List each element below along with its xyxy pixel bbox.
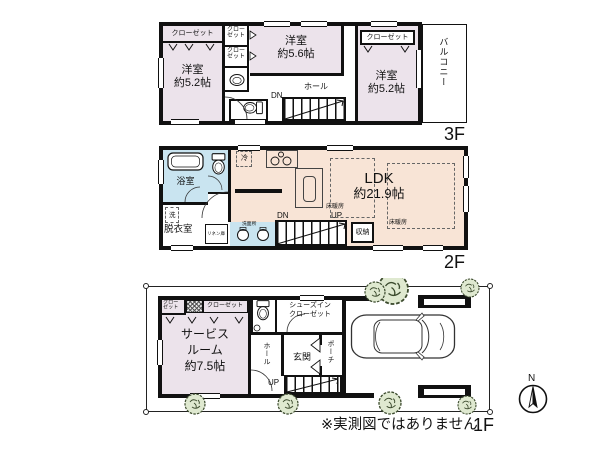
carport-wall	[346, 393, 374, 398]
f2-floor-heating-label-2: 床暖房	[389, 220, 407, 227]
ldk-name: LDK	[337, 170, 421, 187]
f2-lavatory: 洗面所	[230, 222, 275, 246]
f3-bedroom-left-label: 洋室 約5.2帖	[163, 64, 222, 89]
window	[416, 50, 422, 88]
f2-storage: 収納	[351, 222, 374, 243]
f1-closet: クローゼット	[203, 300, 248, 313]
f2-ldk-label: LDK 約21.9帖	[337, 170, 421, 202]
window	[158, 58, 164, 88]
floor-3f: バルコニー クローゼット クロー ゼット クロー ゼット 洋室 約5.6帖 洋室…	[159, 22, 479, 148]
f3-wash-nook	[225, 68, 249, 92]
wall	[251, 332, 344, 335]
shoes-closet-line2: クローゼット	[279, 311, 341, 320]
planter-inner	[424, 299, 465, 305]
f2-laundry-box: 洗	[165, 207, 179, 223]
window	[157, 340, 163, 365]
wall	[163, 202, 208, 205]
f3-closet-small-1-label: クロー ゼット	[227, 27, 245, 40]
f3-hall-label: ホール	[286, 82, 346, 91]
f3-closet-small-2-label: クロー ゼット	[227, 48, 245, 61]
window	[264, 21, 290, 27]
f1-toilet-room	[251, 298, 277, 334]
floor-1f: クロー ゼット クローゼット サービス ルーム 約7.5帖 シューズイン クロー…	[140, 278, 600, 444]
f2-fridge-label: 冷	[241, 155, 248, 163]
compass-north-label: N	[528, 373, 535, 384]
shoes-closet-line1: シューズイン	[279, 302, 341, 311]
window	[238, 145, 260, 151]
disclaimer-text: ※実測図ではありません	[321, 417, 478, 434]
floor-label-2f: 2F	[444, 252, 465, 273]
f3-toilet-room	[229, 99, 268, 121]
f1-closet-label: クローゼット	[204, 303, 246, 310]
wall	[228, 150, 231, 222]
window	[190, 393, 220, 399]
f3-closet-right-label: クローゼット	[362, 34, 413, 42]
f3-closet-right: クローゼット	[360, 30, 415, 45]
room-name: 洋室	[355, 70, 418, 83]
f1-porch-label: ポーチ	[326, 340, 334, 364]
f2-bath-label: 浴室	[163, 176, 208, 186]
boundary-marker	[487, 283, 493, 289]
f1-closet-small: クロー ゼット	[162, 300, 186, 315]
f2-laundry-label: 洗	[169, 212, 176, 219]
window	[371, 21, 397, 27]
stairs-2f	[275, 220, 347, 246]
f2-lavatory-label: 洗面所	[242, 222, 256, 228]
f1-up-label: UP	[268, 378, 279, 387]
window	[171, 119, 199, 125]
window	[158, 160, 164, 184]
window	[300, 295, 324, 301]
f2-dressing-label: 脱衣室	[164, 225, 193, 236]
ldk-size: 約21.9帖	[337, 187, 421, 202]
window	[327, 145, 353, 151]
window	[235, 119, 265, 125]
room-size: 約5.6帖	[254, 48, 338, 61]
boundary-marker	[143, 409, 149, 415]
floor-2f: 浴室 洗 脱衣室 リネン庫 洗面所 冷 DN 床暖房 UP 収納 床暖房 LD	[159, 146, 479, 276]
room-name: 洋室	[163, 64, 222, 77]
f2-linen-box: リネン庫	[205, 224, 228, 244]
f2-storage-label: 収納	[353, 229, 372, 237]
service-room-size: 約7.5帖	[162, 358, 248, 374]
floor-label-3f: 3F	[444, 124, 465, 145]
f1-hatch-box	[186, 300, 203, 313]
window	[423, 245, 443, 251]
compass-icon: N	[514, 370, 552, 418]
window	[171, 245, 193, 251]
service-room-name-2: ルーム	[162, 342, 248, 358]
window	[463, 156, 469, 178]
f1-service-room-label: サービス ルーム 約7.5帖	[162, 326, 248, 375]
kitchen-sink	[303, 176, 316, 202]
f3-closet-small-1: クロー ゼット	[225, 26, 249, 47]
f3-closet-left-label: クローゼット	[163, 30, 222, 38]
room-name: 洋室	[254, 35, 338, 48]
f1-entrance-label: 玄関	[284, 352, 320, 362]
stairs-3f	[282, 97, 346, 121]
f3-bedroom-middle-label: 洋室 約5.6帖	[254, 35, 338, 60]
f1-closet-small-label: クロー ゼット	[163, 300, 178, 310]
floor-label-1f: 1F	[473, 415, 494, 436]
kitchen-partition-wall	[235, 189, 282, 193]
f3-bedroom-right-label: 洋室 約5.2帖	[355, 70, 418, 95]
f3-balcony: バルコニー	[422, 24, 467, 123]
window	[373, 245, 403, 251]
window	[301, 21, 327, 27]
boundary-marker	[143, 283, 149, 289]
f2-linen-label: リネン庫	[207, 232, 225, 237]
f3-balcony-label: バルコニー	[438, 37, 448, 87]
room-size: 約5.2帖	[355, 83, 418, 96]
service-room-name-1: サービス	[162, 326, 248, 342]
carport-wall	[346, 296, 374, 301]
f2-toilet-room	[208, 150, 228, 194]
f3-closet-small-2: クロー ゼット	[225, 47, 249, 68]
f2-fridge-box: 冷	[236, 151, 252, 167]
car-icon	[350, 310, 456, 363]
f1-shoes-closet-label: シューズイン クローゼット	[279, 302, 341, 320]
stairs-1f	[284, 375, 342, 394]
f3-dn-label: DN	[271, 91, 283, 100]
f1-hall-label: ホール	[262, 342, 270, 366]
room-size: 約5.2帖	[163, 77, 222, 90]
window	[463, 186, 469, 212]
f2-dn-label: DN	[277, 211, 289, 220]
kitchen-counter	[266, 150, 298, 168]
wall	[319, 335, 322, 345]
f3-closet-left: クローゼット	[163, 26, 222, 43]
planter-inner	[424, 389, 465, 395]
floorplan-canvas: バルコニー クローゼット クロー ゼット クロー ゼット 洋室 約5.6帖 洋室…	[0, 0, 600, 450]
